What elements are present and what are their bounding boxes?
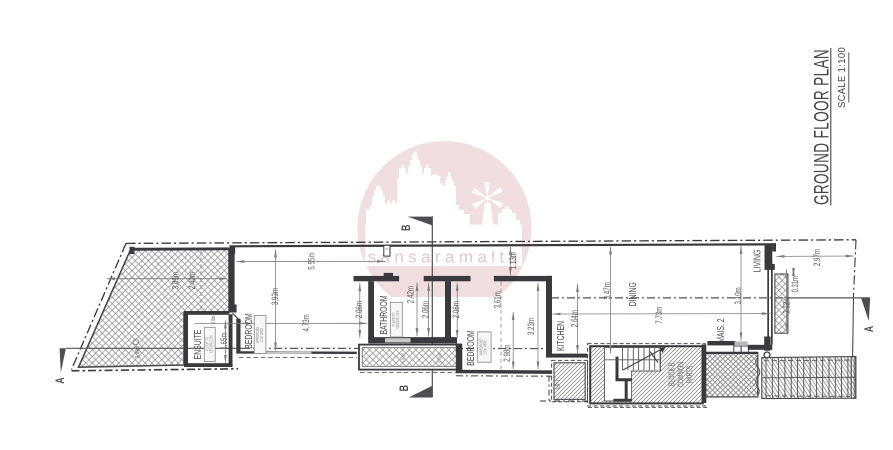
svg-text:2.0m WIDE: 2.0m WIDE bbox=[483, 339, 488, 354]
svg-text:DINING: DINING bbox=[626, 282, 638, 306]
svg-text:KITCHEN: KITCHEN bbox=[554, 321, 566, 351]
svg-text:LIVING: LIVING bbox=[751, 250, 763, 273]
svg-text:3.61m: 3.61m bbox=[492, 291, 503, 309]
svg-text:2.1m WIDE: 2.1m WIDE bbox=[260, 327, 265, 342]
svg-text:2.12m: 2.12m bbox=[781, 296, 792, 314]
svg-text:GROUND FLOOR PLAN: GROUND FLOOR PLAN bbox=[809, 49, 833, 205]
svg-text:BEDROOM: BEDROOM bbox=[243, 313, 255, 348]
svg-text:CEILING 1.9m: CEILING 1.9m bbox=[396, 310, 401, 328]
svg-text:A: A bbox=[863, 326, 877, 333]
svg-text:3.10m: 3.10m bbox=[733, 287, 744, 305]
svg-text:3.93m: 3.93m bbox=[270, 288, 281, 306]
svg-text:2.64m: 2.64m bbox=[569, 310, 580, 328]
svg-text:BEDROOM: BEDROOM bbox=[465, 330, 477, 365]
svg-text:LIFT: LIFT bbox=[553, 378, 561, 390]
svg-text:COMMON: COMMON bbox=[677, 362, 685, 387]
svg-text:3.89m: 3.89m bbox=[170, 272, 181, 290]
svg-text:B: B bbox=[400, 224, 414, 231]
svg-text:A: A bbox=[54, 377, 68, 384]
svg-text:1.65m: 1.65m bbox=[218, 332, 229, 350]
svg-text:CEILING 1.9m: CEILING 1.9m bbox=[209, 335, 214, 353]
svg-text:0.6m: 0.6m bbox=[210, 316, 217, 324]
svg-text:2.06m: 2.06m bbox=[420, 301, 431, 319]
svg-text:MAIS. 2: MAIS. 2 bbox=[715, 318, 727, 342]
svg-text:3.47m: 3.47m bbox=[602, 282, 613, 300]
svg-text:3.49m: 3.49m bbox=[135, 346, 142, 358]
svg-text:BATHROOM: BATHROOM bbox=[378, 295, 390, 334]
svg-text:4.61m: 4.61m bbox=[400, 353, 407, 363]
svg-text:2.42m: 2.42m bbox=[405, 286, 416, 304]
svg-text:PARTS: PARTS bbox=[686, 365, 694, 383]
svg-text:ENSUITE: ENSUITE bbox=[191, 330, 203, 360]
svg-text:2.40m: 2.40m bbox=[187, 272, 198, 290]
svg-text:0.31m: 0.31m bbox=[790, 276, 801, 292]
svg-text:1.13m: 1.13m bbox=[508, 252, 519, 270]
svg-text:4.73m: 4.73m bbox=[301, 314, 312, 332]
svg-text:2.97m: 2.97m bbox=[812, 249, 823, 267]
svg-text:2.06m: 2.06m bbox=[354, 301, 365, 319]
svg-text:7.73m: 7.73m bbox=[654, 306, 665, 324]
svg-text:B: B bbox=[398, 385, 412, 392]
svg-text:5.55m: 5.55m bbox=[306, 252, 317, 270]
svg-text:sansaramalta: sansaramalta bbox=[368, 248, 523, 267]
svg-text:0.70m: 0.70m bbox=[437, 353, 444, 363]
svg-text:SCALE 1:100: SCALE 1:100 bbox=[836, 47, 848, 108]
svg-text:BLOCK B: BLOCK B bbox=[668, 362, 676, 386]
svg-text:2.98m: 2.98m bbox=[502, 344, 513, 362]
svg-text:2.06m: 2.06m bbox=[451, 301, 462, 319]
svg-text:3.23m: 3.23m bbox=[526, 318, 537, 336]
